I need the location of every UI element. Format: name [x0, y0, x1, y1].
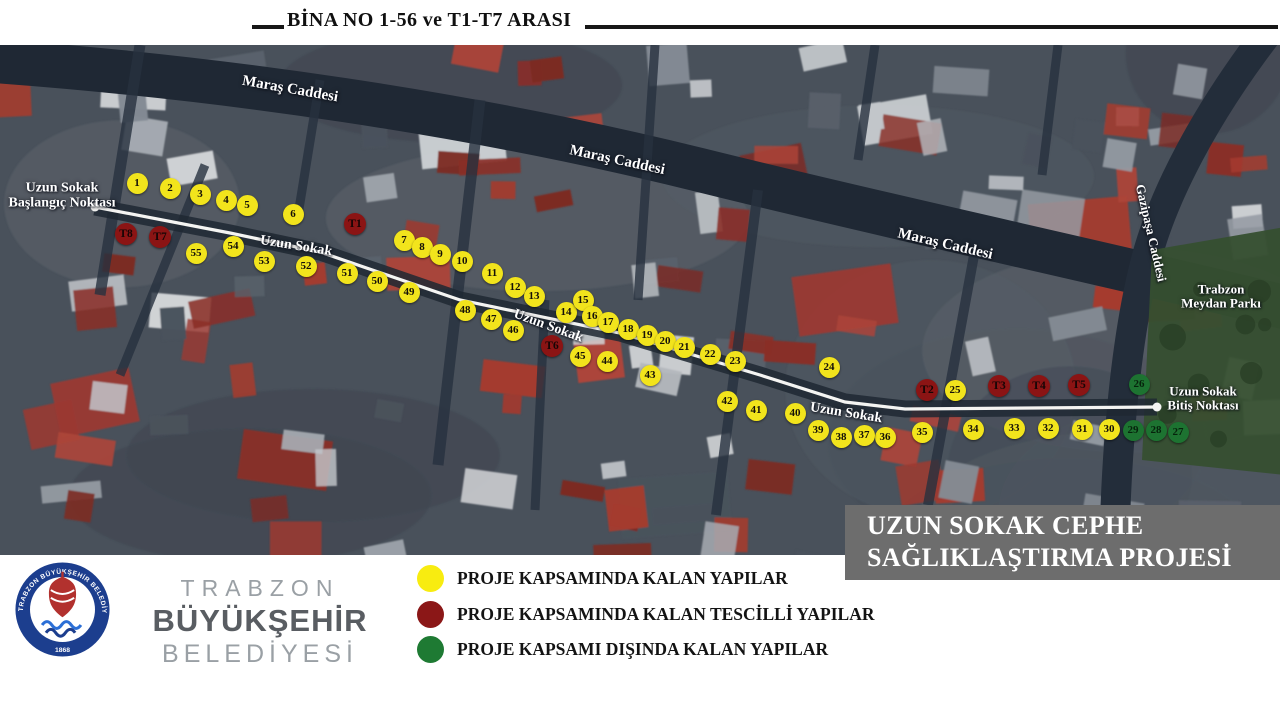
satellite-map-art [0, 45, 1280, 555]
legend-dot-yellow [417, 565, 444, 592]
legend-row-registered: PROJE KAPSAMINDA KALAN TESCİLLİ YAPILAR [417, 600, 874, 629]
legend-label-out-of-scope: PROJE KAPSAMI DIŞINDA KALAN YAPILAR [457, 639, 828, 660]
municipality-name-main: BÜYÜKŞEHİR [135, 603, 385, 639]
legend-label-registered: PROJE KAPSAMINDA KALAN TESCİLLİ YAPILAR [457, 604, 874, 625]
legend: PROJE KAPSAMINDA KALAN YAPILAR PROJE KAP… [417, 564, 874, 671]
logo-year: 1868 [55, 647, 70, 654]
page: BİNA NO 1-56 ve T1-T7 ARASI [0, 0, 1280, 725]
legend-row-out-of-scope: PROJE KAPSAMI DIŞINDA KALAN YAPILAR [417, 635, 874, 664]
municipality-name: TRABZON BÜYÜKŞEHİR BELEDİYESİ [135, 575, 385, 669]
legend-label-in-scope: PROJE KAPSAMINDA KALAN YAPILAR [457, 568, 788, 589]
title-left-rule [252, 25, 284, 29]
project-title-line2: SAĞLIKLAŞTIRMA PROJESİ [867, 542, 1280, 574]
route-end-dot [1153, 403, 1162, 412]
project-title-line1: UZUN SOKAK CEPHE [867, 510, 1280, 542]
satellite-map: Maraş CaddesiMaraş CaddesiMaraş CaddesiU… [0, 45, 1280, 555]
title-bar: BİNA NO 1-56 ve T1-T7 ARASI [0, 0, 1280, 45]
project-title-box: UZUN SOKAK CEPHE SAĞLIKLAŞTIRMA PROJESİ [845, 505, 1280, 580]
route-start-dot [91, 203, 100, 212]
municipality-name-sub: BELEDİYESİ [135, 640, 385, 669]
footer: TRABZON BÜYÜKŞEHİR BELEDİYESİ 1868 TRABZ… [0, 555, 1280, 725]
legend-dot-green [417, 636, 444, 663]
page-title: BİNA NO 1-56 ve T1-T7 ARASI [287, 9, 571, 32]
municipality-name-city: TRABZON [135, 575, 385, 602]
legend-dot-red [417, 601, 444, 628]
legend-row-in-scope: PROJE KAPSAMINDA KALAN YAPILAR [417, 564, 874, 593]
title-right-rule [585, 25, 1278, 29]
municipality-logo: TRABZON BÜYÜKŞEHİR BELEDİYESİ 1868 [14, 561, 111, 658]
